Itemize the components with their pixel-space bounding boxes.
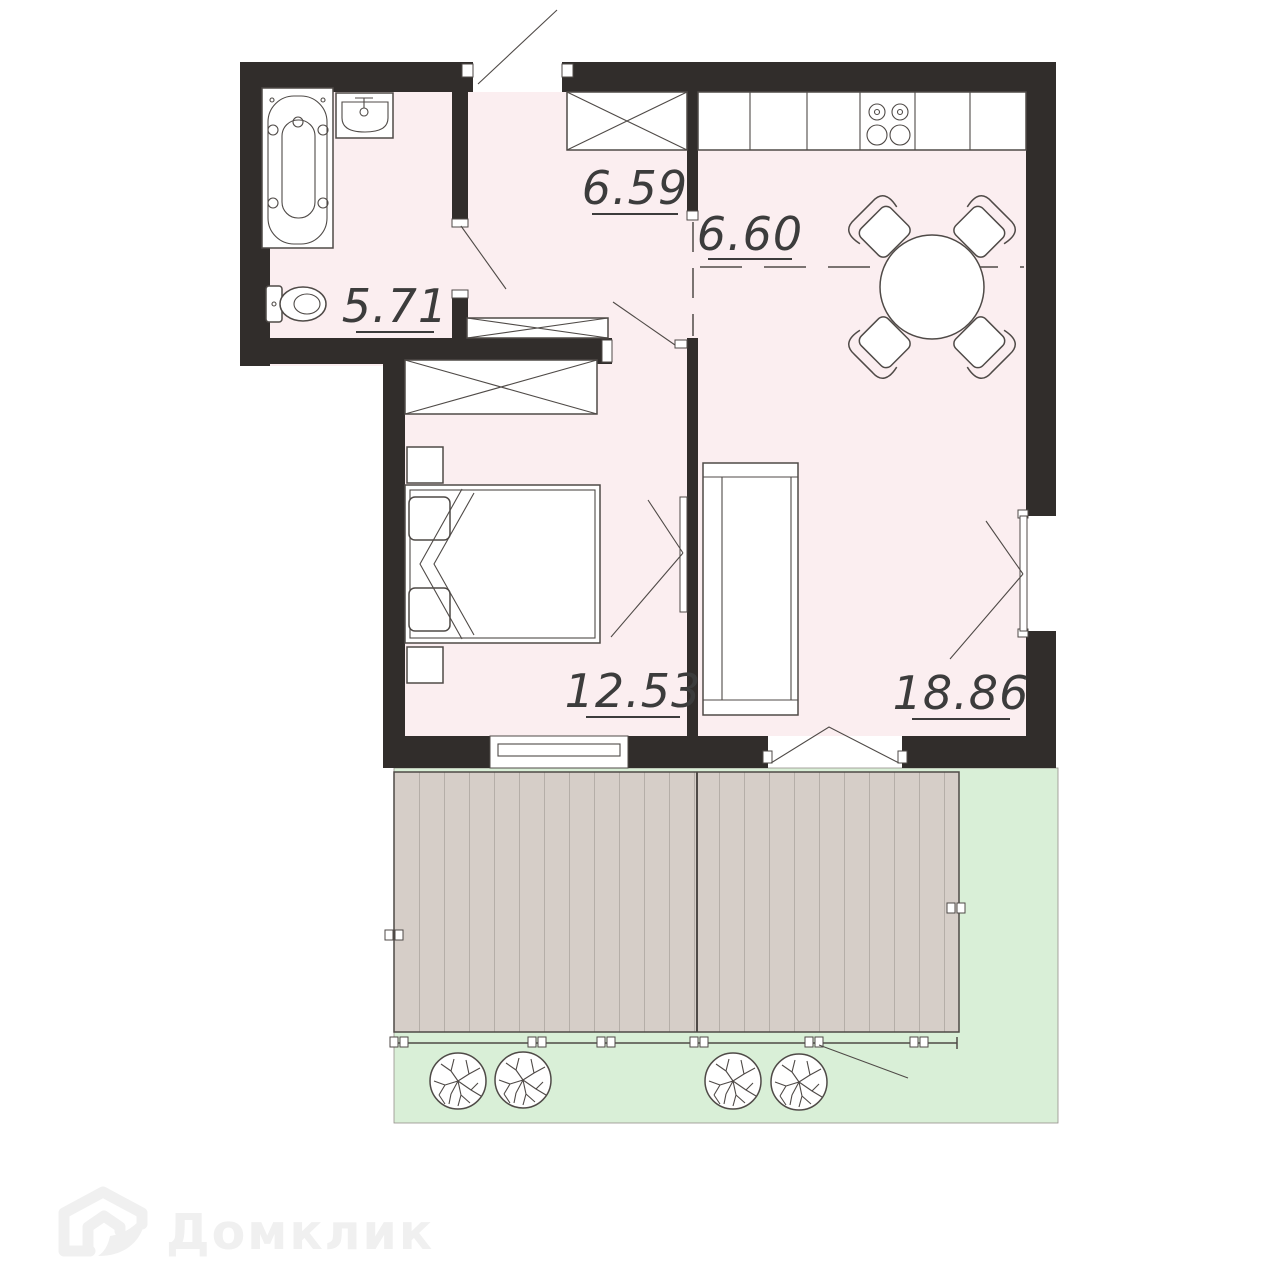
tree-icon xyxy=(495,1052,551,1108)
terrace xyxy=(385,768,1058,1123)
wall-bathroom-right-upper xyxy=(452,92,468,227)
floor-plan: 5.71 6.59 6.60 12.53 18.86 Домклик xyxy=(0,0,1280,1280)
bedroom-window xyxy=(490,736,628,768)
wall-bottom-middle xyxy=(628,736,768,768)
wall-bottom-right xyxy=(902,736,1056,768)
pillow-icon xyxy=(409,588,450,631)
sofa-icon xyxy=(703,463,798,715)
bed-icon xyxy=(405,485,600,643)
wall-bedroom-left xyxy=(383,338,405,768)
kitchen-dining-area-label: 6.60 xyxy=(697,207,803,261)
sink-icon xyxy=(336,93,393,138)
living-room-area-label: 18.86 xyxy=(893,666,1030,720)
kitchen-fixtures xyxy=(698,92,1026,150)
bathtub-icon xyxy=(262,88,333,248)
pillow-icon xyxy=(409,497,450,540)
wall-hall-kitchen xyxy=(687,92,698,219)
wall-top-right xyxy=(562,62,1056,92)
living-furniture xyxy=(703,463,798,715)
wall-bathroom-bottom xyxy=(240,338,405,364)
tree-icon xyxy=(771,1054,827,1110)
toilet-icon xyxy=(266,286,326,322)
wardrobe-icon xyxy=(405,360,597,414)
terrace-deck-icon xyxy=(394,772,959,1032)
tree-icon xyxy=(705,1053,761,1109)
nightstand-icon xyxy=(407,647,443,683)
wall-bottom-bedroom xyxy=(383,736,490,768)
bedroom-area-label: 12.53 xyxy=(565,664,702,718)
dining-table-icon xyxy=(880,235,984,339)
kitchen-counter-icon xyxy=(698,92,1026,150)
wall-right-upper xyxy=(1026,62,1056,516)
nightstand-icon xyxy=(407,447,443,483)
wardrobe-icon xyxy=(567,92,687,150)
hallway-area-label: 6.59 xyxy=(582,161,688,215)
bathroom-area-label: 5.71 xyxy=(342,279,448,333)
watermark-brand: Домклик xyxy=(166,1204,434,1261)
bedroom-furniture xyxy=(405,360,600,683)
wall-bathroom-right-lower xyxy=(452,292,468,338)
tree-icon xyxy=(430,1053,486,1109)
wardrobe-icon xyxy=(467,318,608,338)
